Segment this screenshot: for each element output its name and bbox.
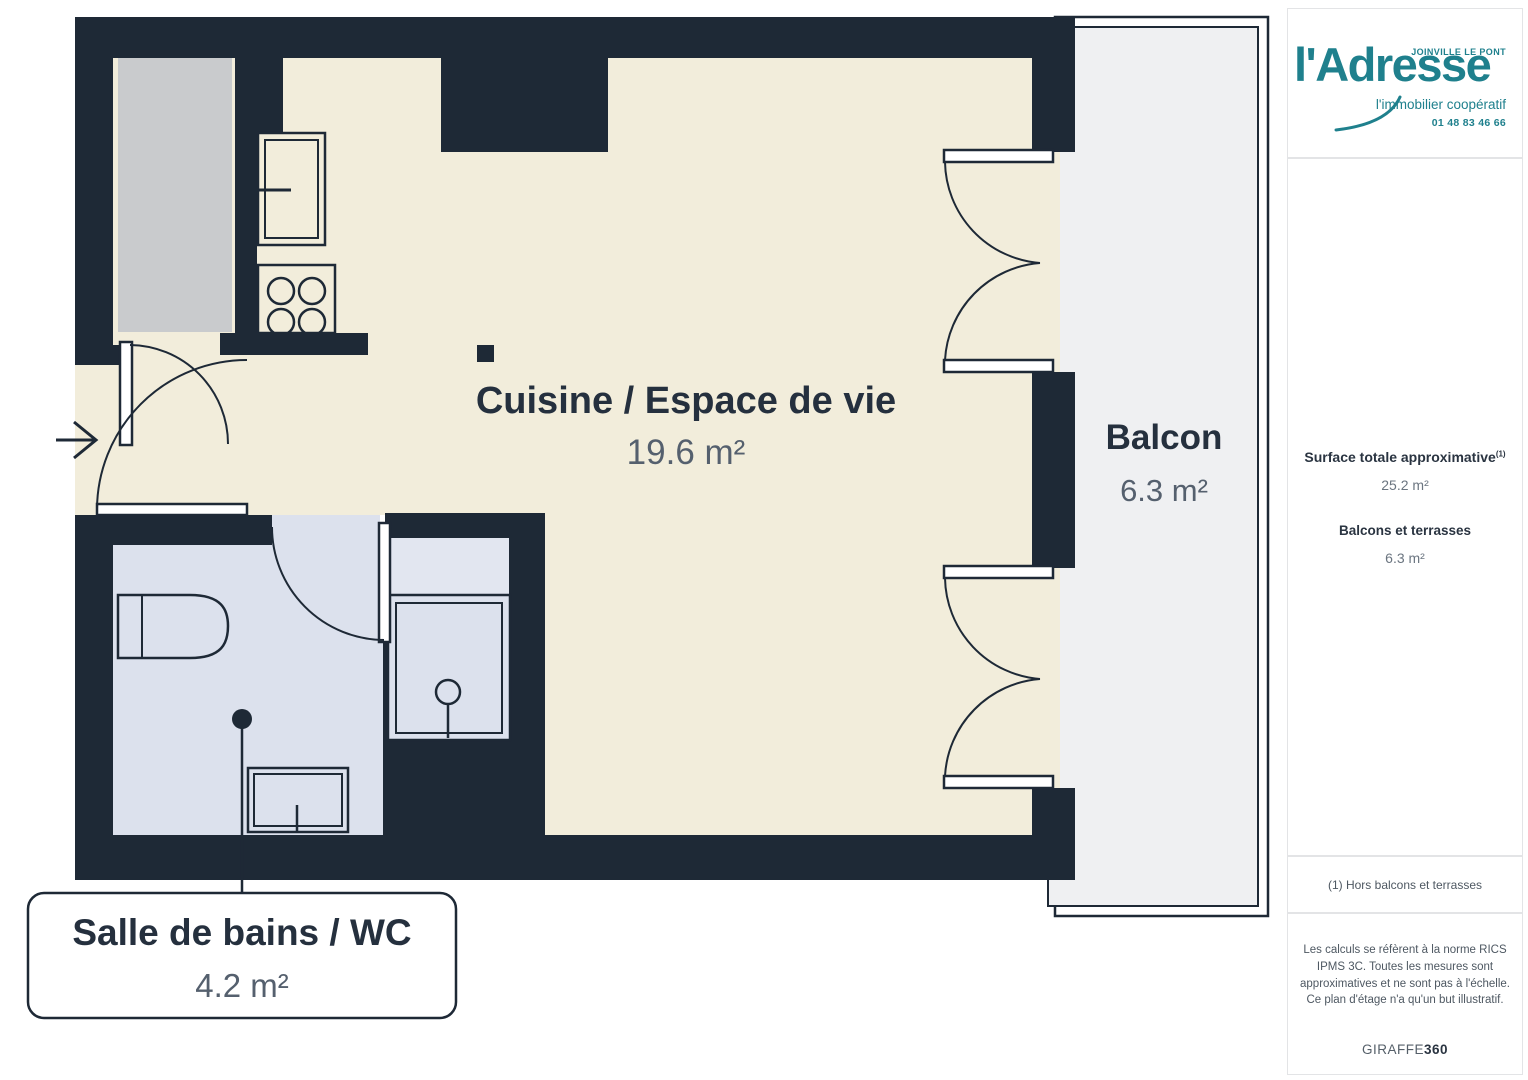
structural-column [477,345,494,362]
giraffe360-brand: GIRAFFE [1362,1042,1424,1057]
surface-balcony-label: Balcons et terrasses [1339,523,1471,538]
hall-door-leaf [97,504,247,515]
balcony-door-leaf [944,150,1053,162]
wall-right-3 [1032,788,1075,880]
wall-left-lower [75,515,113,880]
bathroom-label: Salle de bains / WC [72,912,411,953]
surface-total-label: Surface totale approximative(1) [1304,449,1505,465]
wall-kitchen-strip [235,58,257,355]
bathroom-door-leaf [379,523,390,642]
surface-balcony-value: 6.3 m² [1385,550,1425,566]
brand-tagline: l'immobilier coopératif [1376,97,1506,112]
surface-total-footnote-ref: (1) [1496,449,1506,458]
footnote-text: (1) Hors balcons et terrasses [1328,878,1482,892]
brand-logo: l'Adresse [1294,37,1490,92]
wall-left-upper [75,17,113,365]
balcony-door-leaf [944,360,1053,372]
wall-bath-top-left [75,515,272,545]
wall-top [75,17,1075,58]
wall-right-2 [1032,372,1075,568]
balcony-floor [1048,27,1258,906]
surface-total-label-text: Surface totale approximative [1304,449,1495,465]
footnote-box: (1) Hors balcons et terrasses [1287,856,1523,913]
bathroom-callout: Salle de bains / WC 4.2 m² [28,893,456,1018]
bathroom-door-threshold [272,515,380,547]
shower-top-area [388,537,510,595]
bathroom-leader-dot [232,709,252,729]
balcony-door-leaf [944,776,1053,788]
giraffe360-suffix: 360 [1424,1042,1448,1057]
bathroom-area: 4.2 m² [195,967,289,1004]
wall-right-1 [1032,17,1075,152]
info-sidebar: JOINVILLE LE PONT l'Adresse l'immobilier… [1287,0,1524,1080]
toilet-icon [118,595,228,658]
floor-plan: Cuisine / Espace de vie 19.6 m² Balcon 6… [0,0,1288,1080]
entrance-door-leaf [120,342,132,445]
surface-box: Surface totale approximative(1) 25.2 m² … [1287,158,1523,856]
brand-box: JOINVILLE LE PONT l'Adresse l'immobilier… [1287,8,1523,158]
kitchen-area: 19.6 m² [627,433,746,472]
wall-kitchen-band [220,333,368,355]
balcony [1048,17,1268,916]
wall-top-protrusion [441,58,608,152]
legal-box: Les calculs se réfèrent à la norme RICS … [1287,913,1523,1075]
shower-drain-icon [436,680,460,704]
balcony-label: Balcon [1106,418,1223,457]
wall-below-shower [388,740,545,880]
surface-total-value: 25.2 m² [1381,477,1428,493]
wall-bottom [75,835,1035,880]
disclaimer-text: Les calculs se réfèrent à la norme RICS … [1300,942,1510,1009]
kitchen-label: Cuisine / Espace de vie [476,380,896,422]
balcony-door-leaf [944,566,1053,578]
closet-area [118,58,232,332]
giraffe360-watermark: GIRAFFE360 [1362,1042,1448,1057]
brand-phone: 01 48 83 46 66 [1432,117,1506,129]
balcony-area: 6.3 m² [1120,473,1208,508]
